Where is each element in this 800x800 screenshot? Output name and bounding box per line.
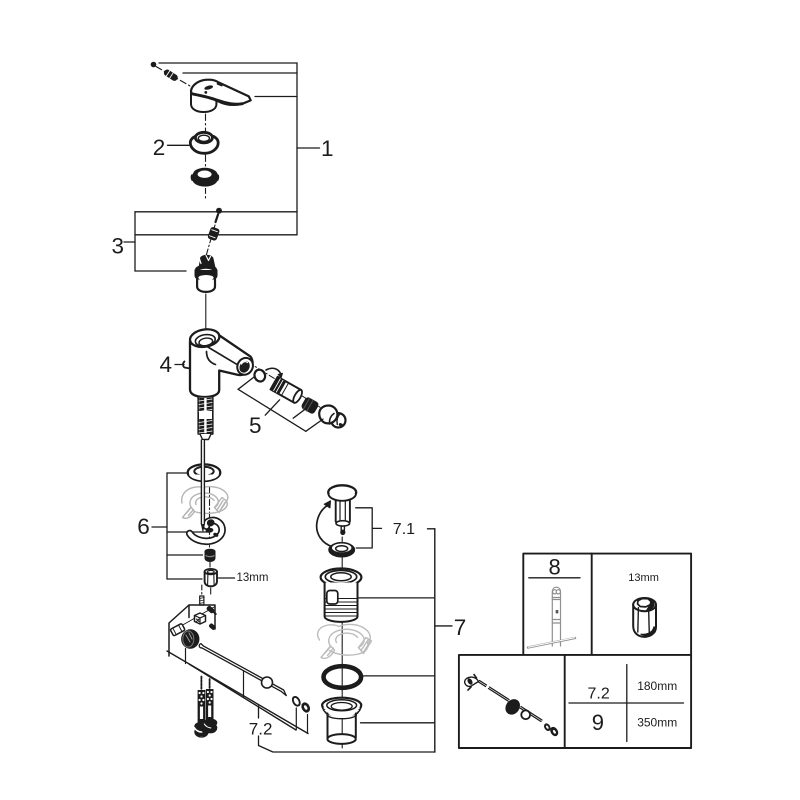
svg-text:9: 9 xyxy=(592,710,604,735)
svg-text:7.2: 7.2 xyxy=(249,719,273,738)
svg-text:13mm: 13mm xyxy=(237,572,269,584)
svg-text:13mm: 13mm xyxy=(628,572,659,584)
svg-text:7.1: 7.1 xyxy=(393,521,415,538)
svg-text:6: 6 xyxy=(137,514,150,539)
svg-text:7.2: 7.2 xyxy=(588,686,610,703)
svg-text:2: 2 xyxy=(153,135,166,160)
svg-text:7: 7 xyxy=(454,615,467,640)
svg-text:3: 3 xyxy=(112,234,125,259)
svg-text:180mm: 180mm xyxy=(637,679,677,693)
svg-text:5: 5 xyxy=(249,413,262,438)
svg-text:1: 1 xyxy=(321,136,334,161)
svg-text:350mm: 350mm xyxy=(637,716,677,730)
svg-text:8: 8 xyxy=(549,555,561,580)
svg-text:4: 4 xyxy=(160,352,173,377)
